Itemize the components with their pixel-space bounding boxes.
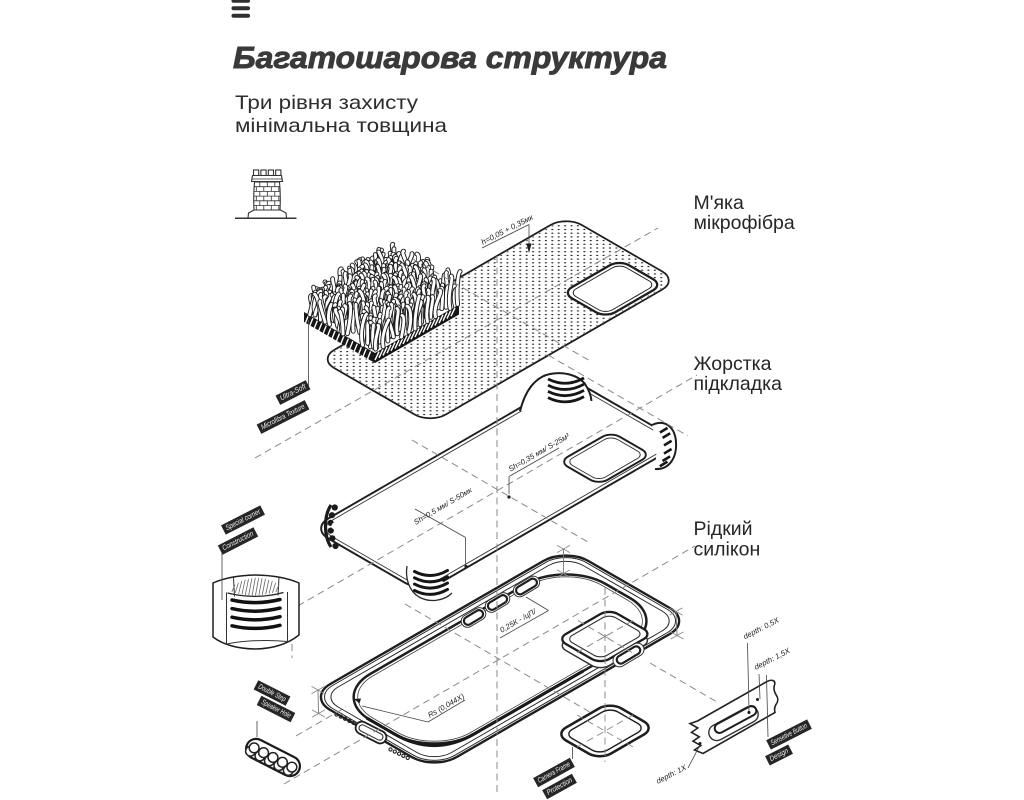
svg-text:мікрофібра: мікрофібра (694, 212, 795, 234)
svg-text:Багатошарова структура: Багатошарова структура (233, 40, 667, 75)
svg-text:Жорстка: Жорстка (694, 353, 772, 375)
svg-text:підкладка: підкладка (694, 373, 783, 395)
svg-text:мінімальна товщина: мінімальна товщина (235, 115, 447, 137)
svg-text:М'яка: М'яка (694, 192, 744, 214)
svg-text:Рідкий: Рідкий (694, 518, 753, 540)
svg-text:Три рівня захисту: Три рівня захисту (235, 92, 418, 114)
svg-text:силікон: силікон (694, 539, 761, 561)
